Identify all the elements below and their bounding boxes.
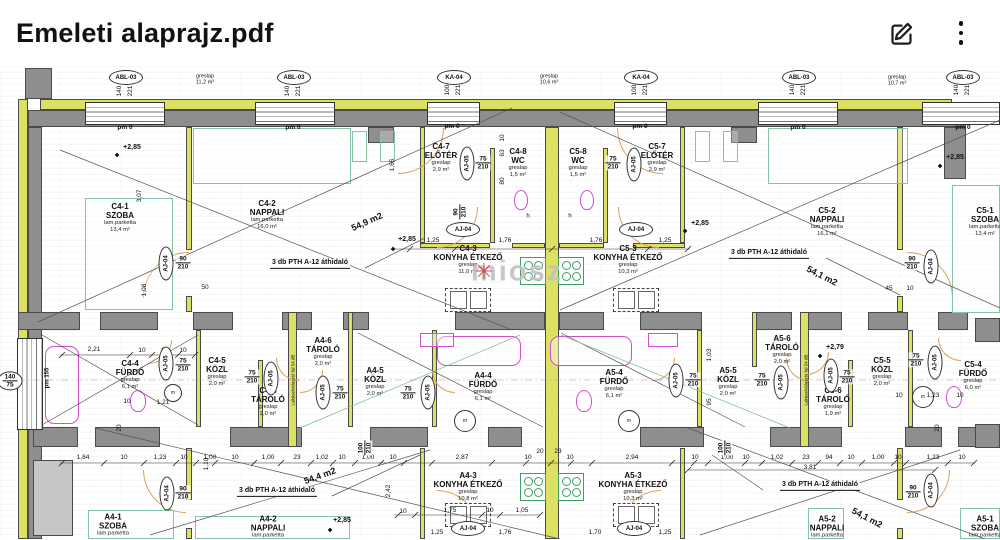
dim-label: greslap 10,7 m²: [888, 75, 907, 88]
room-label: C5-7 ELŐTÉRgreslap 2,9 m²: [641, 142, 673, 174]
dim-label: pm 0: [632, 123, 647, 131]
dim-label: pm 155: [44, 368, 51, 389]
dim-fraction: 75210: [476, 155, 491, 170]
dim-label: 54,1 m2: [850, 506, 884, 531]
dim-label: 1,25: [659, 237, 672, 245]
room-finish: greslap 2,0 m²: [364, 385, 386, 398]
wall: [559, 312, 604, 330]
dim-label: 1,21: [157, 399, 170, 407]
wall: [420, 448, 425, 539]
dim-label: 54,1 m2: [805, 264, 839, 288]
wall: [348, 312, 353, 427]
room-finish: lam.parketta 16,1 m²: [810, 225, 845, 238]
door-tag: AJ-04: [924, 474, 939, 508]
room-code: A4-4 FÜRDŐ: [469, 371, 497, 389]
wall: [186, 296, 192, 312]
wall: [196, 330, 201, 427]
dim-label: 3 db PTH A-12 áthidaló: [270, 259, 350, 269]
window: [922, 102, 1000, 125]
dim-fraction: 75210: [333, 385, 348, 400]
fixture-sink: [420, 333, 454, 347]
room-code: A5-3 KONYHA ÉTKEZŐ: [598, 471, 667, 489]
dim-label: 10: [399, 508, 406, 516]
wall: [343, 312, 369, 330]
dim-label: 23: [293, 454, 300, 462]
room-finish: greslap 6,1 m²: [469, 390, 497, 403]
wall: [897, 296, 903, 312]
dim-label: +2,85: [123, 144, 141, 152]
room-finish: greslap 2,0 m²: [717, 385, 739, 398]
dim-label: 1,25: [659, 529, 672, 537]
fixture-sofa: [768, 128, 908, 184]
dim-label: 20: [116, 424, 124, 431]
door-tag: ABL-03: [277, 70, 311, 85]
room-code: C4-1 SZOBA: [104, 202, 136, 220]
wall: [545, 127, 559, 539]
dim-label: 1,08: [141, 284, 149, 297]
dim-label: 54,9 m2: [350, 210, 384, 233]
room-code: C5-2 NAPPALI: [810, 206, 845, 224]
wall: [938, 312, 968, 330]
fixture-box: [723, 131, 738, 162]
dim-fraction: 75210: [686, 372, 701, 387]
room-label: A4-2 NAPPALIlam.parketta: [251, 514, 286, 539]
room-code: C4-8 WC: [508, 147, 527, 165]
door-tag: AJ-05: [627, 148, 642, 182]
room-code: C5-5 KÖZL: [871, 356, 893, 374]
dim-label: 10: [389, 454, 396, 462]
dim-label: 221: [127, 86, 135, 97]
room-finish: greslap 2,0 m²: [206, 375, 228, 388]
room-code: A4-1 SZOBA: [97, 512, 129, 530]
wall: [868, 312, 908, 330]
room-code: A4-2 NAPPALI: [251, 514, 286, 532]
wall: [455, 312, 545, 330]
wall: [752, 312, 757, 367]
room-code: A5-6 TÁROLÓ: [765, 334, 799, 352]
room-finish: greslap 1,5 m²: [568, 166, 587, 179]
dim-label: 1,05: [516, 507, 529, 515]
room-label: A5-1 SZOBAlam.parketta: [969, 514, 1000, 539]
room-label: C5-1 SZOBAlam.parketta 13,4 m²: [969, 206, 1000, 238]
dim-label: pm 0: [790, 124, 805, 132]
dim-fraction: 75210: [755, 372, 770, 387]
dim-fraction: 75210: [176, 357, 191, 372]
room-finish: greslap 10,3 m²: [593, 263, 662, 276]
fixture-sofa: [193, 128, 351, 184]
dim-label: 10: [123, 398, 130, 406]
dim-label: 23: [802, 454, 809, 462]
dim-fraction: 100210: [717, 441, 732, 456]
door-tag: AJ-04: [159, 247, 174, 281]
fixture-counter: [613, 288, 659, 312]
dim-label: 10: [895, 392, 902, 400]
dim-label: 20: [934, 424, 942, 431]
dim-label: Lakáselválasztó fal 54 dB: [803, 354, 808, 405]
door-tag: AJ-05: [669, 364, 684, 398]
dim-label: 10: [120, 454, 127, 462]
dim-label: 1,70: [589, 529, 602, 537]
dim-label: +2,85: [398, 236, 416, 244]
room-code: C4-7 ELŐTÉR: [425, 142, 457, 160]
room-finish: greslap 2,0 m²: [306, 355, 340, 368]
watermark-logo-icon: ✳: [475, 259, 493, 285]
room-label: A4-3 KONYHA ÉTKEZŐgreslap 10,8 m²: [433, 471, 502, 503]
dim-label: 10: [231, 454, 238, 462]
wall: [33, 427, 78, 447]
wall: [897, 528, 903, 539]
wall: [193, 312, 233, 330]
dim-label: ◆: [328, 527, 333, 534]
room-label: A4-4 FÜRDŐgreslap 6,1 m²: [469, 371, 497, 403]
dim-label: 3 db PTH A-12 áthidaló: [780, 481, 860, 491]
dim-label: 1,02: [771, 454, 784, 462]
dim-fraction: 75210: [840, 369, 855, 384]
room-code: C4-2 NAPPALI: [250, 199, 285, 217]
dim-label: 1,03: [706, 349, 714, 362]
dim-label: 1,23: [154, 454, 167, 462]
fixture-box: [695, 131, 710, 162]
room-code: A5-1 SZOBA: [969, 514, 1000, 532]
door-tag: AJ-05: [316, 376, 331, 410]
dim-label: 140: [284, 86, 292, 97]
room-finish: greslap 6,1 m²: [600, 387, 628, 400]
room-label: A4-6 TÁROLÓgreslap 2,0 m²: [306, 336, 340, 368]
room-finish: greslap 2,9 m²: [425, 161, 457, 174]
room-finish: lam.parketta 13,4 m²: [104, 221, 136, 234]
dim-label: +2,79: [826, 344, 844, 352]
dim-label: pm 0: [444, 123, 459, 131]
room-finish: lam.parketta: [97, 531, 129, 538]
wall: [640, 427, 704, 447]
dim-label: 1,23: [927, 454, 940, 462]
room-code: A4-6 TÁROLÓ: [306, 336, 340, 354]
dim-label: 1,75: [444, 507, 457, 515]
room-label: C5-4 FÜRDŐgreslap 6,0 m²: [959, 360, 987, 392]
more-options-icon[interactable]: [938, 10, 984, 56]
wall: [186, 127, 192, 250]
dim-label: greslap 11,2 m²: [196, 74, 214, 87]
dim-label: 54,4 m2: [303, 465, 338, 486]
dim-label: 1,25: [427, 237, 440, 245]
fixture-wc: [514, 190, 528, 210]
wall: [18, 312, 80, 330]
wall: [752, 312, 792, 330]
fixture-counter: [445, 288, 491, 312]
dim-label: +2,85: [946, 154, 964, 162]
dim-label: 100: [444, 85, 452, 96]
door-tag: AJ-05: [824, 359, 839, 393]
dim-label: +2,85: [333, 517, 351, 525]
dim-label: 10: [894, 454, 901, 462]
dim-label: 20: [536, 448, 543, 456]
room-label: C4-1 SZOBAlam.parketta 13,4 m²: [104, 202, 136, 234]
dim-label: 63: [499, 149, 507, 156]
dim-label: 10: [499, 134, 507, 141]
wall: [680, 127, 685, 243]
fixture-m: m: [454, 410, 476, 432]
room-finish: greslap 2,9 m²: [641, 161, 673, 174]
door-tag: ABL-03: [946, 70, 980, 85]
dim-label: 3 db PTH A-12 áthidaló: [729, 249, 809, 259]
dim-label: 3,07: [136, 190, 144, 203]
fixture-wc: [576, 390, 592, 412]
room-code: A4-5 KÖZL: [364, 366, 386, 384]
door-tag: ABL-03: [782, 70, 816, 85]
dim-label: 50: [201, 284, 208, 292]
door-tag: AJ-05: [460, 147, 475, 181]
fixture-wc: [580, 190, 594, 210]
room-finish: greslap 1,9 m²: [816, 405, 850, 418]
room-label: A5-4 FÜRDŐgreslap 6,1 m²: [600, 368, 628, 400]
dim-fraction: 90210: [905, 255, 920, 270]
fixture-box: [352, 131, 367, 162]
dim-label: 2,21: [88, 346, 101, 354]
fixture-stove: [520, 473, 546, 501]
wall: [975, 318, 1000, 342]
dim-label: h: [526, 213, 529, 220]
dim-label: 1,25: [431, 529, 444, 537]
dim-label: ◆: [115, 152, 120, 159]
dim-label: 1,84: [77, 454, 90, 462]
dim-label: 10: [958, 454, 965, 462]
dim-label: 2,42: [385, 485, 393, 498]
dim-label: pm 0: [117, 124, 132, 132]
dim-label: 10: [486, 507, 493, 515]
room-code: C4-4 FÜRDŐ: [116, 359, 144, 377]
fixture-stove: [558, 473, 584, 501]
dim-label: 10: [180, 454, 187, 462]
room-code: C5-8 WC: [568, 147, 587, 165]
dim-label: 1,76: [499, 529, 512, 537]
room-code: C5-1 SZOBA: [969, 206, 1000, 224]
room-finish: greslap 10,3 m²: [598, 490, 667, 503]
dim-label: 3 db PTH A-12 áthidaló: [237, 487, 317, 497]
room-label: C5-2 NAPPALIlam.parketta 16,1 m²: [810, 206, 845, 238]
door-tag: AJ-05: [928, 346, 943, 380]
room-code: A5-2 NAPPALI: [810, 514, 845, 532]
dim-label: 1,00: [262, 454, 275, 462]
dim-label: 1,76: [499, 237, 512, 245]
wall: [33, 460, 73, 536]
wall: [282, 312, 312, 330]
dim-label: 1,65: [389, 159, 397, 172]
wall: [370, 427, 428, 447]
dim-label: 10: [956, 392, 963, 400]
dim-label: 1,00: [872, 454, 885, 462]
dim-label: ◆: [938, 163, 943, 170]
dim-label: ◆: [818, 353, 823, 360]
room-code: A4-3 KONYHA ÉTKEZŐ: [433, 471, 502, 489]
dim-label: 221: [964, 85, 972, 96]
dim-label: 221: [455, 85, 463, 96]
dim-label: 10: [691, 454, 698, 462]
door-tag: AJ-04: [160, 477, 175, 511]
room-finish: greslap 10,8 m²: [433, 490, 502, 503]
room-label: C4-8 WCgreslap 1,5 m²: [508, 147, 527, 179]
room-code: A5-5 KÖZL: [717, 366, 739, 384]
room-label: A5-5 KÖZLgreslap 2,0 m²: [717, 366, 739, 398]
door-tag: AJ-04: [619, 222, 653, 237]
room-label: C4-2 NAPPALIlam.parketta 16,0 m²: [250, 199, 285, 231]
door-tag: AJ-05: [159, 347, 174, 381]
room-label: C5-8 WCgreslap 1,5 m²: [568, 147, 587, 179]
dim-label: h: [568, 213, 571, 220]
door-tag: KA-04: [437, 70, 471, 85]
room-label: A5-2 NAPPALIlam.parketta: [810, 514, 845, 539]
door-tag: AJ-04: [446, 222, 480, 237]
room-label: A4-5 KÖZLgreslap 2,0 m²: [364, 366, 386, 398]
wall: [186, 528, 192, 539]
window: [758, 102, 838, 125]
dim-fraction: 75210: [909, 352, 924, 367]
dim-label: 10: [847, 454, 854, 462]
dim-label: Lakáselválasztó fal 54 dB: [290, 354, 295, 405]
wall: [908, 330, 913, 427]
room-code: C5-3 KONYHA ÉTKEZŐ: [593, 244, 662, 262]
wall: [975, 424, 1000, 448]
door-tag: KA-04: [624, 70, 658, 85]
room-label: A5-3 KONYHA ÉTKEZŐgreslap 10,3 m²: [598, 471, 667, 503]
fixture-wc: [130, 390, 146, 412]
fixture-bed: [952, 185, 1000, 313]
room-label: C5-3 KONYHA ÉTKEZŐgreslap 10,3 m²: [593, 244, 662, 276]
wall: [640, 312, 702, 330]
dim-label: pm 0: [955, 124, 970, 132]
dim-label: +2,85: [691, 220, 709, 228]
room-label: C4-4 FÜRDŐgreslap 6,1 m²: [116, 359, 144, 391]
app-header: Emeleti alaprajz.pdf: [0, 0, 1000, 66]
room-finish: greslap 6,1 m²: [116, 378, 144, 391]
room-code: C5-4 FÜRDŐ: [959, 360, 987, 378]
edit-icon[interactable]: [878, 10, 924, 56]
room-code: A5-4 FÜRDŐ: [600, 368, 628, 386]
dim-fraction: 90210: [176, 255, 191, 270]
room-code: C5-7 ELŐTÉR: [641, 142, 673, 160]
dim-fraction: 90210: [452, 205, 467, 220]
wall: [95, 427, 160, 447]
dim-label: 94: [825, 454, 832, 462]
door-tag: AJ-04: [924, 250, 939, 284]
room-label: A4-1 SZOBAlam.parketta: [97, 512, 129, 537]
dim-label: 2,94: [626, 454, 639, 462]
dim-label: pm 0: [285, 124, 300, 132]
door-tag: ABL-03: [109, 70, 143, 85]
dim-fraction: 90210: [906, 484, 921, 499]
room-finish: greslap 2,0 m²: [251, 405, 285, 418]
room-finish: greslap 2,0 m²: [765, 353, 799, 366]
dim-fraction: 90210: [176, 485, 191, 500]
dim-label: 1,76: [590, 237, 603, 245]
dim-label: 221: [295, 86, 303, 97]
dim-label: 1,23: [927, 392, 940, 400]
dim-label: 221: [642, 85, 650, 96]
dim-label: 140: [789, 85, 797, 96]
dim-label: ◆: [683, 228, 688, 235]
door-tag: AJ-04: [451, 521, 485, 536]
window: [614, 102, 667, 125]
wall: [488, 427, 522, 447]
dim-fraction: 75210: [401, 385, 416, 400]
dim-label: 10: [566, 454, 573, 462]
room-label: C4-5 KÖZLgreslap 2,0 m²: [206, 356, 228, 388]
dim-label: 80: [499, 177, 507, 184]
dim-label: ◆: [391, 246, 396, 253]
dim-label: 10: [742, 454, 749, 462]
dim-label: 1,10: [203, 458, 211, 471]
wall: [680, 448, 685, 539]
dim-label: 45: [885, 285, 892, 293]
dim-label: 1,02: [316, 454, 329, 462]
wall: [100, 312, 158, 330]
room-finish: lam.parketta 16,0 m²: [250, 218, 285, 231]
dim-label: 100: [631, 85, 639, 96]
door-tag: AJ-05: [421, 376, 436, 410]
dim-label: greslap 10,6 m²: [540, 74, 559, 87]
room-finish: greslap 2,0 m²: [871, 375, 893, 388]
dim-label: 95: [706, 398, 714, 405]
window: [427, 102, 480, 125]
dim-label: 221: [800, 85, 808, 96]
dim-label: 140: [953, 85, 961, 96]
door-tag: AJ-05: [264, 362, 279, 396]
dim-label: 10: [138, 347, 145, 355]
fixture-m: m: [618, 410, 640, 432]
dim-label: 2,87: [456, 454, 469, 462]
dim-label: 10: [179, 347, 186, 355]
door-tag: AJ-05: [774, 366, 789, 400]
fixture-tub: [550, 336, 632, 366]
room-label: A5-6 TÁROLÓgreslap 2,0 m²: [765, 334, 799, 366]
room-label: C4-7 ELŐTÉRgreslap 2,9 m²: [425, 142, 457, 174]
window: [85, 102, 165, 125]
pdf-page-floorplan[interactable]: mmmmC4-1 SZOBAlam.parketta 13,4 m²C4-2 N…: [0, 0, 1000, 539]
room-finish: greslap 1,5 m²: [508, 166, 527, 179]
dim-label: 10: [338, 454, 345, 462]
wall: [490, 148, 495, 243]
dim-label: 3,81: [804, 464, 817, 472]
wall: [25, 68, 52, 99]
dim-label: 10: [524, 454, 531, 462]
room-code: C4-5 KÖZL: [206, 356, 228, 374]
dim-fraction: 75210: [245, 369, 260, 384]
room-finish: lam.parketta 13,4 m²: [969, 225, 1000, 238]
dim-fraction: 75210: [606, 155, 621, 170]
dim-label: 140: [116, 86, 124, 97]
room-label: C5-5 KÖZLgreslap 2,0 m²: [871, 356, 893, 388]
dim-label: 23: [554, 448, 561, 456]
dim-fraction: 100210: [357, 441, 372, 456]
door-tag: AJ-04: [617, 521, 651, 536]
wall: [512, 243, 545, 248]
document-title: Emeleti alaprajz.pdf: [16, 18, 274, 49]
window: [255, 102, 335, 125]
fixture-sink: [648, 333, 678, 347]
room-finish: greslap 6,0 m²: [959, 379, 987, 392]
dim-label: 10: [906, 285, 913, 293]
